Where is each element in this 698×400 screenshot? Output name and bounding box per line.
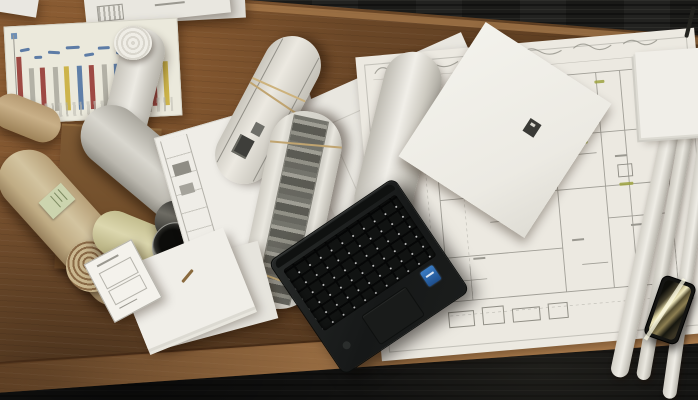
blue-scribble [66,46,80,50]
photo-print-block-small [250,122,264,137]
elevation-sketch [512,306,541,322]
blue-scribble [34,56,42,59]
blue-scribble [98,46,110,50]
elevation-sketch [448,310,475,328]
photo-print-block [231,134,255,159]
print-text [155,1,185,6]
intel-sticker [420,265,442,287]
white-roll-upper-end [114,26,152,60]
elevation-sketch [548,302,569,320]
blue-scribble [48,51,60,55]
laptop-logo-badge [341,340,352,351]
black-stamp [522,118,541,138]
elevation-sketch [482,305,505,325]
plan-corner-stack [635,48,698,138]
blue-scribble [84,52,94,57]
stamp-mark [530,122,536,127]
print-table [97,4,125,23]
blue-scribble [20,48,30,53]
desk-scene [0,0,698,400]
